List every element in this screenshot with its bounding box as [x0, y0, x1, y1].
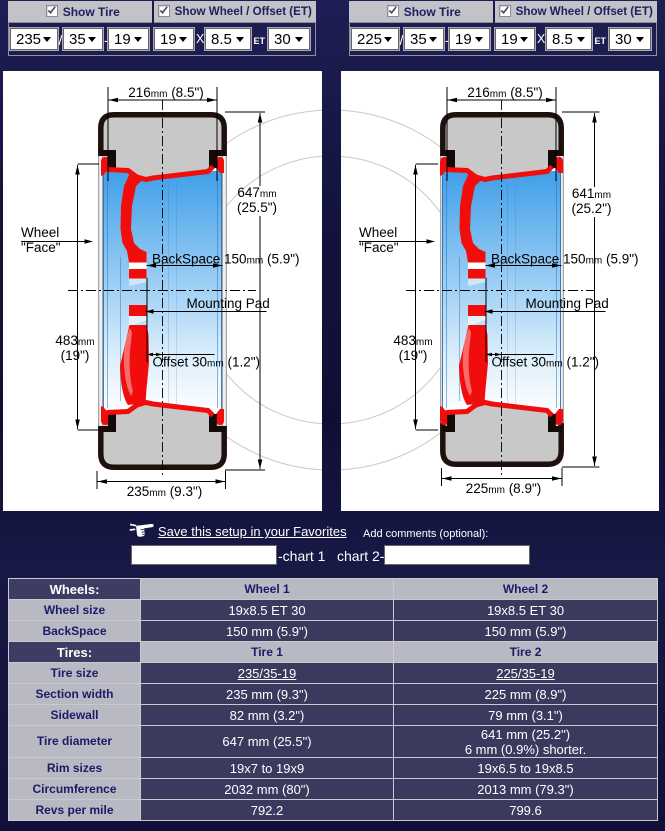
svg-text:"Face": "Face": [21, 240, 61, 255]
svg-text:BackSpace 150mm (5.9"): BackSpace 150mm (5.9"): [152, 252, 300, 267]
svg-text:(25.5"): (25.5"): [237, 200, 277, 215]
svg-text:Offset 30mm (1.2"): Offset 30mm (1.2"): [153, 355, 261, 370]
svg-text:(19"): (19"): [61, 348, 90, 363]
svg-text:Mounting Pad: Mounting Pad: [187, 296, 270, 311]
svg-text:Offset 30mm (1.2"): Offset 30mm (1.2"): [492, 355, 600, 370]
svg-text:235mm (9.3"): 235mm (9.3"): [127, 484, 203, 499]
svg-text:641mm: 641mm: [572, 186, 611, 201]
svg-text:483mm: 483mm: [55, 333, 94, 348]
svg-text:Wheel: Wheel: [21, 225, 59, 240]
svg-text:216mm (8.5"): 216mm (8.5"): [467, 85, 543, 100]
svg-text:225mm (8.9"): 225mm (8.9"): [466, 481, 542, 496]
svg-text:483mm: 483mm: [393, 333, 432, 348]
svg-text:"Face": "Face": [359, 240, 399, 255]
svg-text:Mounting Pad: Mounting Pad: [526, 296, 609, 311]
svg-text:216mm (8.5"): 216mm (8.5"): [128, 85, 204, 100]
svg-text:BackSpace 150mm (5.9"): BackSpace 150mm (5.9"): [491, 252, 639, 267]
svg-text:647mm: 647mm: [237, 185, 276, 200]
svg-text:(25.2"): (25.2"): [571, 201, 611, 216]
svg-text:(19"): (19"): [399, 348, 428, 363]
svg-text:Wheel: Wheel: [359, 225, 397, 240]
